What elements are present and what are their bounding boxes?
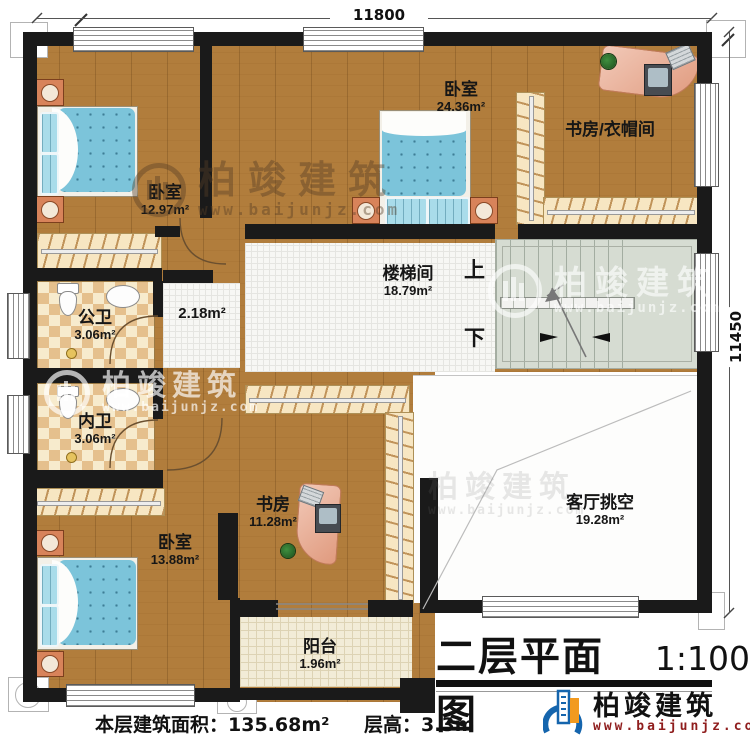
room-name: 卧室 [120, 533, 230, 553]
wall-bedroom1-stub [155, 226, 180, 237]
room-area: 3.06m² [55, 328, 135, 343]
wardrobe-study-top [245, 385, 410, 414]
wall-hall-top [163, 270, 213, 283]
room-area: 1.96m² [270, 657, 370, 672]
label-living-void: 客厅挑空 19.28m² [535, 493, 665, 527]
label-stairwell: 楼梯间 18.79m² [353, 264, 463, 298]
room-area: 18.79m² [353, 284, 463, 299]
room-area: 13.88m² [120, 553, 230, 568]
logo-building-orange [570, 698, 579, 723]
wall-bath-divider [23, 368, 163, 383]
window-right-2 [694, 253, 719, 352]
sink-icon [106, 285, 140, 308]
label-bedroom-bottom-left: 卧室 13.88m² [120, 533, 230, 567]
wall-bedroom3-top [23, 470, 163, 488]
title-scale: 1:100 [655, 639, 750, 678]
nightstand [352, 197, 380, 224]
footer-stats: 本层建筑面积：135.68m² 层高：3.3m [95, 710, 475, 737]
room-name: 公卫 [55, 308, 135, 328]
sink-icon [106, 388, 140, 411]
label-study-cloakroom: 书房/衣帽间 [535, 120, 685, 140]
pillow [40, 153, 59, 195]
floor-area-value: 135.68m² [228, 714, 329, 736]
wardrobe-bedroom-bottom [33, 488, 165, 516]
brand-url: www.baijunjz.com [593, 720, 750, 733]
wall-study-void [420, 478, 438, 613]
label-study: 书房 11.28m² [218, 495, 328, 529]
room-name: 书房/衣帽间 [535, 120, 685, 140]
label-private-bath: 内卫 3.06m² [55, 412, 135, 446]
stairwell-floor [245, 243, 495, 372]
exterior-box [706, 20, 746, 58]
window-bottom-2 [482, 596, 639, 618]
pillow [385, 197, 428, 226]
room-name: 卧室 [110, 183, 220, 203]
room-name: 阳台 [270, 637, 370, 657]
brand-logo-icon [543, 686, 585, 740]
wardrobe-cloakroom-left [516, 92, 545, 225]
floor-height-value: 3.3m [421, 714, 474, 736]
window-bottom-1 [66, 684, 195, 707]
room-area: 2.18m² [162, 305, 242, 322]
label-balcony: 阳台 1.96m² [270, 637, 370, 671]
dim-tick [75, 14, 87, 26]
window-top-2 [303, 27, 424, 52]
pillow [40, 605, 59, 647]
window-right-1 [694, 83, 719, 187]
floor-drain-icon [66, 452, 77, 463]
room-name: 楼梯间 [353, 264, 463, 284]
room-area: 24.36m² [406, 100, 516, 115]
stairs-down-label: 下 [464, 322, 485, 352]
stairs-up-label: 上 [464, 254, 485, 284]
floor-plan-canvas: 11800 11450 卧室 12.97m² 卧室 24.36m² 书房/衣帽间… [0, 0, 750, 754]
nightstand [36, 79, 64, 106]
wardrobe-study-right [385, 412, 414, 604]
nightstand [470, 197, 498, 224]
wall-mid-left [245, 224, 495, 239]
room-area: 12.97m² [110, 203, 220, 218]
nightstand [36, 651, 64, 677]
label-public-bath: 公卫 3.06m² [55, 308, 135, 342]
window-top-1 [73, 27, 194, 52]
room-name: 内卫 [55, 412, 135, 432]
wardrobe-cloakroom-bottom [543, 197, 699, 225]
room-name: 客厅挑空 [535, 493, 665, 513]
floor-drain-icon [66, 348, 77, 359]
hall-floor [163, 283, 240, 368]
pillow [40, 564, 59, 606]
plant-icon [601, 54, 616, 69]
wall-balcony-stub-right [368, 600, 413, 617]
pillow [40, 112, 59, 154]
wall-mid-right [518, 224, 697, 239]
logo-building [558, 691, 569, 723]
dimension-right-label: 11450 [727, 307, 745, 367]
nightstand [36, 530, 64, 556]
pillow [427, 197, 470, 226]
room-area: 19.28m² [535, 513, 665, 528]
wall-left [23, 32, 37, 702]
room-name: 卧室 [406, 80, 516, 100]
window-left-2 [7, 395, 30, 454]
nightstand [36, 196, 64, 223]
dimension-top-label: 11800 [330, 6, 428, 24]
wall-privatebath-right [153, 383, 163, 419]
label-bedroom-top: 卧室 24.36m² [406, 80, 516, 114]
label-bedroom-top-left: 卧室 12.97m² [110, 183, 220, 217]
stair-handrail [500, 297, 635, 309]
room-area: 11.28m² [218, 515, 328, 530]
floor-height-label: 层高： [364, 714, 421, 736]
label-hall: 2.18m² [162, 305, 242, 322]
bed-sheet [382, 112, 466, 136]
wall-balcony-stub-left [240, 600, 278, 617]
living-void-area [413, 375, 697, 603]
wall-balcony-bottom [230, 688, 415, 700]
monitor-icon [644, 64, 672, 96]
wall-balcony-left [230, 598, 240, 700]
room-area: 3.06m² [55, 432, 135, 447]
column-pillar [400, 678, 435, 713]
plant-icon [281, 544, 295, 558]
room-name: 书房 [218, 495, 328, 515]
brand-name: 柏竣建筑 [593, 693, 750, 720]
window-left-1 [7, 293, 30, 359]
wall-closet-bath [30, 268, 162, 281]
wardrobe-bedroom-top-left [37, 233, 162, 269]
brand-logo: 柏竣建筑 www.baijunjz.com [543, 686, 750, 740]
floor-area-label: 本层建筑面积： [95, 714, 228, 736]
